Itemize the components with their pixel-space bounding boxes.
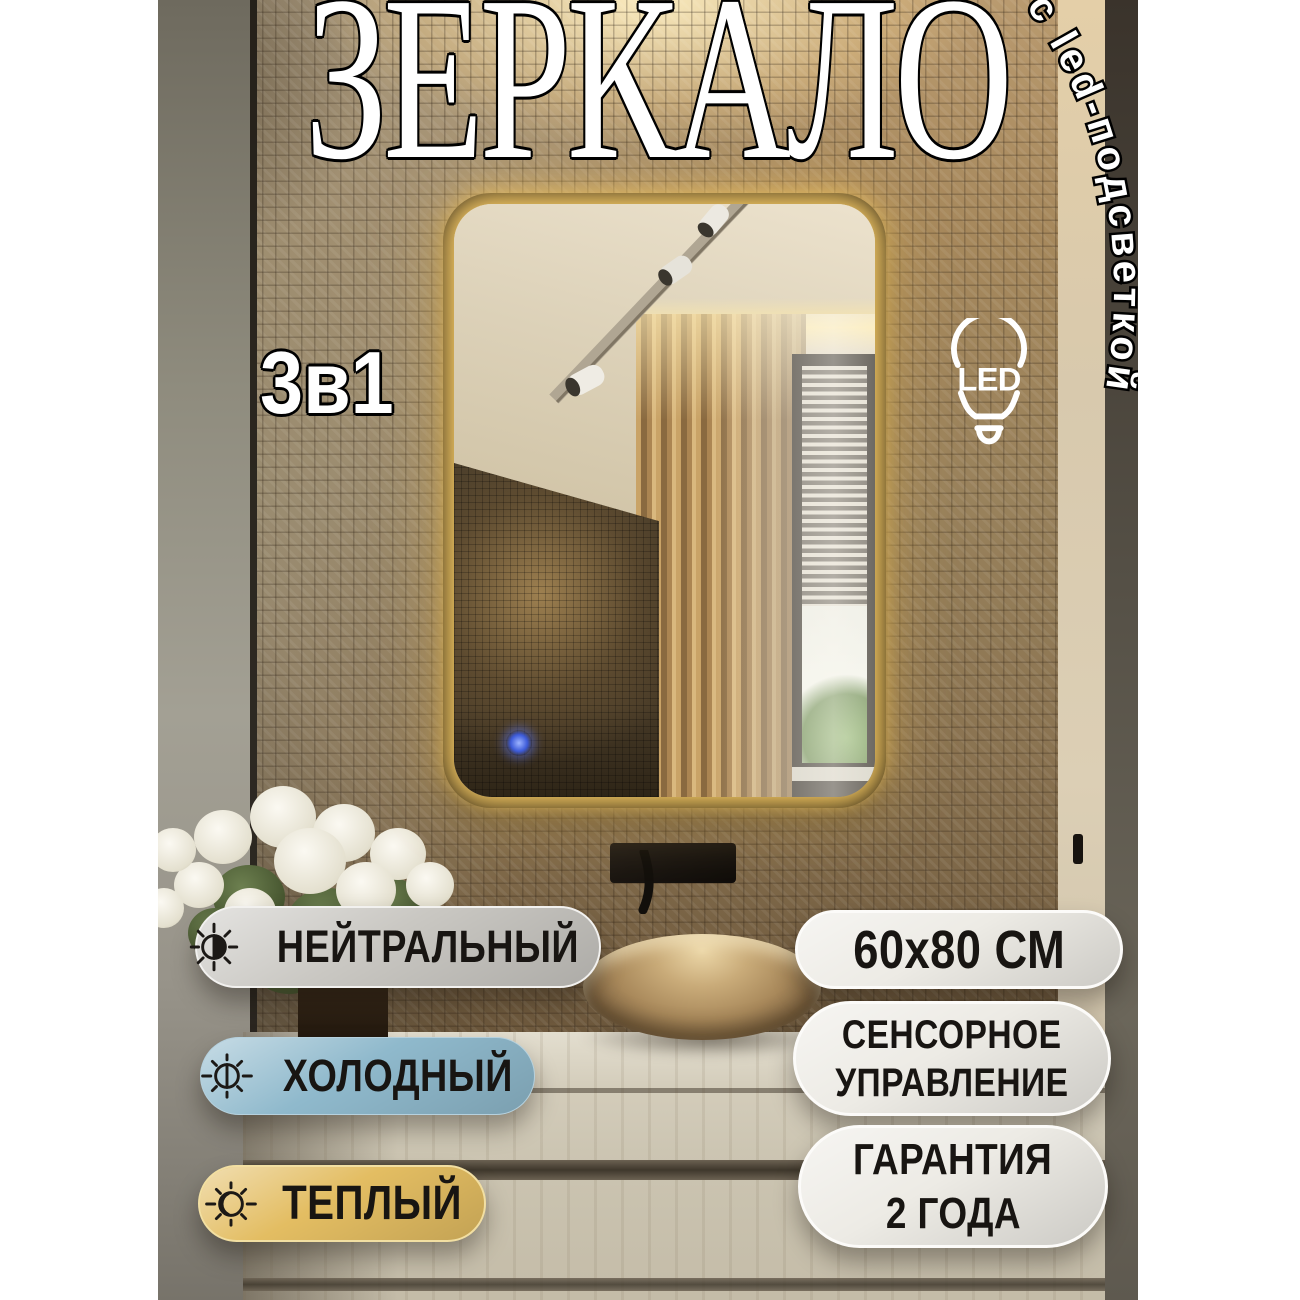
sun-cold-icon: [201, 1050, 253, 1102]
light-mode-cold: ХОЛОДНЫЙ: [200, 1037, 535, 1115]
drawer-groove: [243, 1278, 1105, 1291]
product-banner: ЗЕРКАЛО с led-подсветкой 3в1 LED: [0, 0, 1300, 1300]
sun-half-icon: [188, 921, 240, 973]
faucet-spout: [634, 850, 660, 914]
spec-warranty-line2: 2 ГОДА: [885, 1187, 1020, 1241]
page-title: ЗЕРКАЛО: [305, 0, 991, 196]
spec-size-label: 60х80 СМ: [853, 919, 1065, 981]
led-mirror: [443, 193, 886, 808]
faucet-plate: [610, 843, 736, 883]
bathroom-photo: ЗЕРКАЛО с led-подсветкой 3в1 LED: [158, 0, 1138, 1300]
spec-warranty-line1: ГАРАНТИЯ: [853, 1133, 1052, 1187]
mirror-glass: [454, 204, 875, 797]
spec-size: 60х80 СМ: [795, 910, 1123, 989]
light-mode-label: НЕЙТРАЛЬНЫЙ: [277, 921, 579, 973]
touch-sensor-dot: [506, 730, 532, 756]
sun-warm-icon: [205, 1178, 257, 1230]
spec-warranty: ГАРАНТИЯ 2 ГОДА: [798, 1125, 1108, 1248]
svg-text:LED: LED: [957, 361, 1020, 398]
light-mode-neutral: НЕЙТРАЛЬНЫЙ: [195, 906, 601, 988]
light-mode-label: ХОЛОДНЫЙ: [283, 1050, 513, 1102]
spec-touch-line2: УПРАВЛЕНИЕ: [835, 1059, 1068, 1107]
light-mode-label: ТЕПЛЫЙ: [282, 1176, 462, 1231]
led-bulb-icon: LED: [950, 318, 1028, 451]
right-door-panel: [1105, 0, 1138, 1300]
light-mode-warm: ТЕПЛЫЙ: [198, 1165, 486, 1242]
door-handle: [1073, 834, 1083, 864]
vessel-sink: [583, 934, 821, 1040]
track-light-icon: [454, 204, 875, 797]
spec-touch-control: СЕНСОРНОЕ УПРАВЛЕНИЕ: [793, 1001, 1111, 1116]
badge-3in1: 3в1: [260, 332, 394, 434]
spec-touch-line1: СЕНСОРНОЕ: [842, 1011, 1062, 1059]
